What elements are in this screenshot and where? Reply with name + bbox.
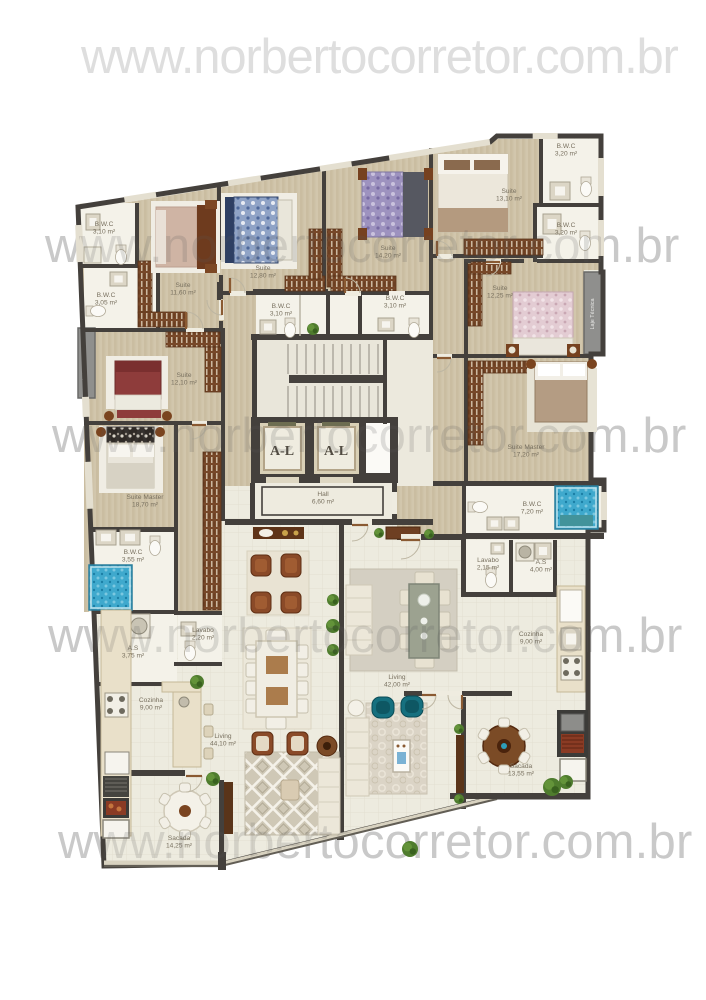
svg-text:3,55 m²: 3,55 m² xyxy=(122,557,145,564)
svg-text:B.W.C: B.W.C xyxy=(124,549,143,556)
svg-text:12,80 m²: 12,80 m² xyxy=(250,273,277,280)
svg-text:B.W.C: B.W.C xyxy=(386,295,405,302)
svg-text:Suite: Suite xyxy=(176,372,191,379)
svg-text:3,10 m²: 3,10 m² xyxy=(270,311,293,318)
svg-text:Sacada: Sacada xyxy=(510,763,533,770)
svg-text:A.S: A.S xyxy=(536,559,547,566)
svg-text:12,10 m²: 12,10 m² xyxy=(171,380,198,387)
svg-text:2,15 m²: 2,15 m² xyxy=(477,565,500,572)
svg-text:B.W.C: B.W.C xyxy=(97,292,116,299)
svg-text:B.W.C: B.W.C xyxy=(557,143,576,150)
svg-text:3,10 m²: 3,10 m² xyxy=(384,303,407,310)
svg-text:B.W.C: B.W.C xyxy=(272,303,291,310)
svg-text:3,05 m²: 3,05 m² xyxy=(95,300,118,307)
svg-text:Hall: Hall xyxy=(317,491,329,498)
svg-text:Suite Master: Suite Master xyxy=(126,494,164,501)
svg-text:www.norbertocorretor.com.br: www.norbertocorretor.com.br xyxy=(47,609,682,663)
svg-text:www.norbertocorretor.com.br: www.norbertocorretor.com.br xyxy=(44,219,679,273)
svg-text:Lavabo: Lavabo xyxy=(477,557,499,564)
svg-text:42,00 m²: 42,00 m² xyxy=(384,682,411,689)
svg-text:6,60 m²: 6,60 m² xyxy=(312,499,335,506)
svg-text:Suite: Suite xyxy=(501,188,516,195)
svg-text:Cozinha: Cozinha xyxy=(139,697,164,704)
svg-text:Suite: Suite xyxy=(175,282,190,289)
svg-text:18,70 m²: 18,70 m² xyxy=(132,502,159,509)
svg-text:3,20 m²: 3,20 m² xyxy=(555,151,578,158)
svg-text:9,00 m²: 9,00 m² xyxy=(140,705,163,712)
svg-text:Living: Living xyxy=(214,733,232,740)
svg-text:www.norbertocorretor.com.br: www.norbertocorretor.com.br xyxy=(80,30,679,84)
svg-text:7,20 m²: 7,20 m² xyxy=(521,509,544,516)
svg-text:Laje Técnica: Laje Técnica xyxy=(590,298,596,330)
svg-text:13,55 m²: 13,55 m² xyxy=(508,771,535,778)
svg-text:4,00 m²: 4,00 m² xyxy=(530,567,553,574)
svg-text:11,60 m²: 11,60 m² xyxy=(170,290,196,297)
svg-text:12,25 m²: 12,25 m² xyxy=(487,293,514,300)
svg-text:44,10 m²: 44,10 m² xyxy=(210,741,237,748)
svg-text:B.W.C: B.W.C xyxy=(523,501,542,508)
svg-text:Living: Living xyxy=(388,674,406,681)
svg-text:13,10 m²: 13,10 m² xyxy=(496,196,523,203)
svg-text:Suite: Suite xyxy=(492,285,507,292)
